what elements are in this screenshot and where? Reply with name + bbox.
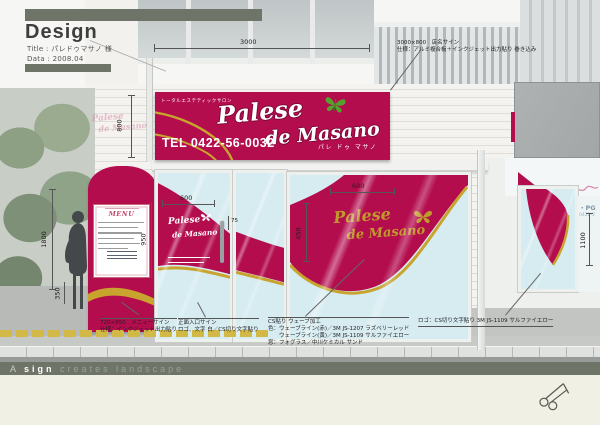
menu-spec-note: 720×950 メニューサイン 仕様：インクジェット出力貼り [100,318,177,334]
header-bar [25,9,262,21]
dim-350: 350 [55,287,62,299]
dim-75: 75 [231,218,238,225]
title-label: Title : [27,45,49,53]
entrance-door: Palese de Masano [155,170,233,342]
door-info-line [168,257,210,258]
narrow-window-wave [236,173,284,339]
dim-tick [330,188,331,195]
window-mullion [310,0,315,64]
menu-footer-line [107,258,137,259]
blank-sign-panel [514,82,600,158]
dim-tick [303,261,310,262]
menu-line [98,227,138,228]
dim-line [228,216,229,230]
dim-tick [214,200,215,207]
dim-tick [128,157,135,158]
menu-line [98,232,142,233]
dim-tick [586,213,593,214]
design-sheet: Palese de Masano トータルエステティックサロン Palese d… [0,0,600,425]
dim-line [52,190,53,290]
display-window-wave [290,175,468,339]
fascia-spec-line1: 3000×800 店名サイン [397,40,536,47]
data-value: 2008.04 [53,55,84,63]
door-butterfly-icon [200,213,212,222]
slogan-rest: creates landscape [60,364,184,374]
balcony-railing [374,22,520,88]
dim-line [331,192,395,193]
dim-950: 950 [141,233,148,245]
title-row: Title : パレドゥマサノ 様 [27,44,112,54]
wave-spec-line2: 色：ウェーブライン(赤)／3M JS-1207 ラズベリーレッド [268,326,409,333]
dim-tick [154,44,155,52]
wave-spec-line1: CS貼り ウェーブ加工 [268,319,409,326]
fascia-sign: トータルエステティックサロン Palese de Masano TEL 0422… [155,92,390,160]
dim-line [64,282,65,304]
pg-text: ・PG [579,202,596,212]
entrance-spec-note: 正面入口サイン ロゴ、文字 白／CS切り文字貼り [178,318,259,334]
slogan-sign: sign [24,364,55,374]
wave-spec-note: CS貼り ウェーブ加工 色：ウェーブライン(赤)／3M JS-1207 ラズベリ… [268,317,409,347]
dim-tick [162,200,163,207]
page-title: Design [25,21,98,44]
logo-spec-note: ロゴ：CS切り文字貼り 3M JS-1109 サルファイエロー [418,318,553,327]
dim-line [131,96,132,158]
curb-stones [0,346,600,357]
dim-3000: 3000 [240,39,257,46]
menu-ornament [105,208,139,209]
dim-line [306,204,307,262]
menu-spec-line1: 720×950 メニューサイン [100,320,177,327]
dim-logo-600: 600 [352,183,364,190]
butterfly-icon [322,94,348,115]
menu-footer-line [107,251,137,252]
header-accent-bar [25,64,111,72]
footer: e-ra creation [0,375,600,425]
dim-line [589,214,590,266]
dim-line [151,202,152,278]
dim-logo-450: 450 [296,227,303,239]
fascia-spec-line2: 仕様：アルミ複合板＋インクジェット出力貼り 巻き込み [397,47,536,54]
door-handle [220,221,224,263]
fascia-spec-note: 3000×800 店名サイン 仕様：アルミ複合板＋インクジェット出力貼り 巻き込… [397,40,536,54]
dim-tick [394,188,395,195]
dim-line [155,48,370,49]
wave-spec-line4: 窓：フォグラス／中川ケミカル サンド [268,340,409,347]
dim-tick [303,203,310,204]
door-info-line [168,262,204,263]
dim-800: 800 [117,119,124,131]
dim-door-600: 600 [180,195,192,202]
dim-1100: 1100 [580,232,587,249]
menu-line [98,222,144,223]
data-row: Data : 2008.04 [27,55,84,63]
entrance-spec-line2: ロゴ、文字 白／CS切り文字貼り [178,327,259,334]
menu-title: MENU [94,210,149,218]
right-window [518,186,578,292]
person-silhouette [56,210,96,315]
menu-sign: MENU [88,166,157,332]
drain-pipe [146,58,153,162]
menu-spec-line2: 仕様：インクジェット出力貼り [100,327,177,334]
logo-spec-line1: ロゴ：CS切り文字貼り 3M JS-1109 サルファイエロー [418,318,553,325]
dim-line [163,204,215,205]
menu-line [98,248,128,249]
scissors-icon [532,381,570,411]
right-window-wave [521,189,575,289]
title-value: パレドゥマサノ 様 [51,45,112,53]
wave-spec-line3: ウェーブライン(黄)／3M JS-1109 サルファイエロー [268,333,409,340]
menu-line [98,238,134,239]
dim-tick [128,95,135,96]
window-butterfly-icon [412,209,434,225]
dim-tick [369,44,370,52]
fascia-tel: TEL 0422-56-0032 [162,136,275,150]
dim-tick [49,189,56,190]
dim-tick [586,265,593,266]
slogan: A sign creates landscape [10,364,184,374]
site-photo: Palese de Masano トータルエステティックサロン Palese d… [0,0,600,362]
magenta-strip [511,112,515,142]
dim-1800: 1800 [41,231,48,248]
menu-footer-line [107,255,137,256]
data-label: Data : [27,55,50,63]
menu-line [98,243,140,244]
slogan-a: A [10,364,19,374]
fascia-kana: パレ ドゥ マサノ [318,142,377,151]
entrance-spec-line1: 正面入口サイン [178,320,259,327]
